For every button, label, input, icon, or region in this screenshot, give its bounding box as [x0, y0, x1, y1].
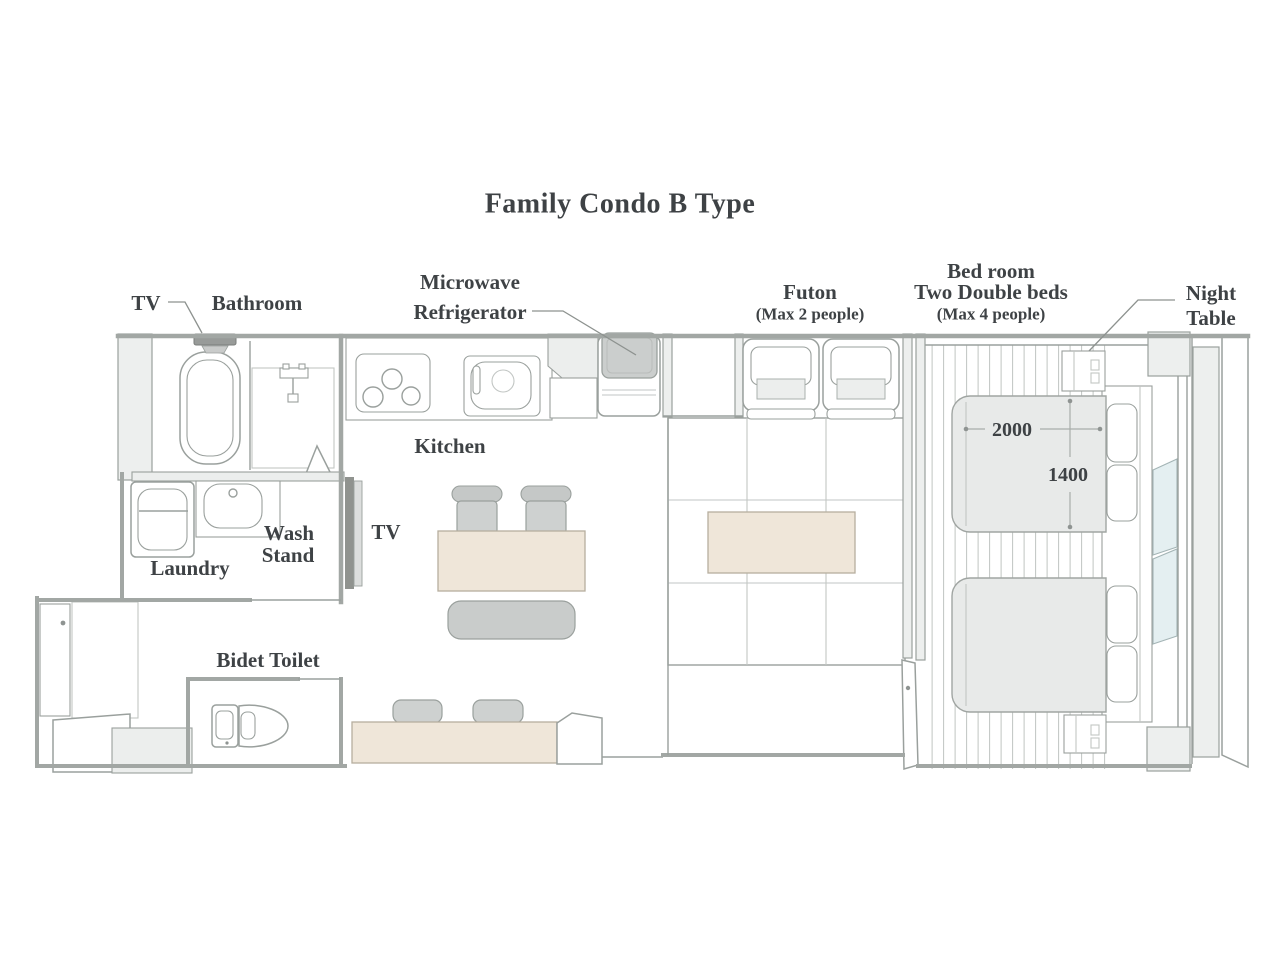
window-pane-1: [1153, 459, 1177, 555]
bathroom-room: [118, 334, 344, 481]
label-tv-bathroom: TV: [131, 291, 160, 315]
counter-cushion-1: [393, 700, 442, 723]
label-refrigerator: Refrigerator: [413, 300, 526, 324]
corner-block-top: [1148, 332, 1190, 376]
label-futon: Futon: [783, 280, 837, 304]
dim-bed-length: 2000: [992, 419, 1032, 441]
floor-plan-svg: Family Condo B Type TV Bathroom Microwav…: [0, 0, 1280, 960]
leader-tv-bathroom: [168, 302, 202, 333]
double-bed-2: [952, 578, 1106, 712]
washroom-counter: [132, 472, 344, 481]
kitchen-cabinet-lower: [550, 378, 597, 418]
label-wash-stand-2: Stand: [262, 543, 315, 567]
futon-bedroom-wall-b: [916, 334, 925, 660]
futon-bedroom-wall-a: [903, 334, 912, 658]
label-night-table-1: Night: [1186, 281, 1236, 305]
washing-machine-icon: [131, 482, 194, 557]
dining-chair-1: [452, 486, 502, 534]
pillow-icon: [1107, 586, 1137, 643]
laundry-room: [131, 481, 280, 557]
dining-table: [438, 531, 585, 591]
futon-room: [663, 334, 925, 769]
counter-cushion-2: [473, 700, 523, 723]
bathtub-inner: [187, 360, 233, 456]
futon-chair-2: [823, 339, 899, 419]
stove-icon: [356, 354, 430, 412]
kitchen-sink-icon: [464, 356, 540, 416]
label-laundry: Laundry: [150, 556, 230, 580]
page-title: Family Condo B Type: [485, 189, 756, 220]
futon-chair-1: [743, 339, 819, 419]
right-wall-lines: [1178, 336, 1192, 764]
label-futon-capacity: (Max 2 people): [756, 305, 865, 324]
entrance-tile-floor: [72, 602, 138, 718]
shower-faucet-icon: [280, 364, 308, 402]
entrance-closet: [40, 604, 70, 716]
toilet-room: [212, 705, 288, 747]
label-kitchen: Kitchen: [414, 434, 485, 458]
dining-chair-2: [521, 486, 571, 534]
label-bathroom: Bathroom: [212, 291, 303, 315]
futon-wall-post-left: [663, 334, 672, 417]
floor-plan-page: Family Condo B Type TV Bathroom Microwav…: [0, 0, 1280, 960]
night-table-top: [1062, 351, 1105, 391]
label-bedroom-capacity: (Max 4 people): [937, 305, 1046, 324]
pillow-icon: [1107, 404, 1137, 462]
right-wall-panel: [1193, 347, 1219, 757]
living-tv-icon: [345, 477, 362, 589]
dining-bench: [448, 601, 575, 639]
dim-bed-width: 1400: [1048, 464, 1088, 486]
label-bidet-toilet: Bidet Toilet: [216, 648, 319, 672]
night-table-bottom: [1064, 715, 1106, 753]
window-pane-2: [1153, 549, 1177, 644]
pillow-icon: [1107, 646, 1137, 702]
pillow-icon: [1107, 465, 1137, 521]
kitchen-room: [346, 333, 660, 420]
futon-wall-post-mid: [735, 334, 743, 417]
kitchen-cabinet: [548, 334, 598, 378]
sliding-door-icon: [902, 660, 918, 769]
low-counter: [352, 722, 557, 763]
label-wash-stand-1: Wash: [264, 521, 315, 545]
bidet-toilet-icon: [212, 705, 288, 747]
outer-right-wall: [1222, 336, 1248, 767]
bathroom-left-wall: [118, 334, 152, 480]
counter-end-box: [557, 713, 602, 764]
label-tv-living: TV: [371, 520, 400, 544]
low-table: [708, 512, 855, 573]
label-microwave: Microwave: [420, 270, 520, 294]
label-bedroom-2: Two Double beds: [914, 280, 1068, 304]
closet-handle-dot: [61, 621, 66, 626]
label-night-table-2: Table: [1186, 306, 1235, 330]
entrance-area: [40, 604, 192, 773]
